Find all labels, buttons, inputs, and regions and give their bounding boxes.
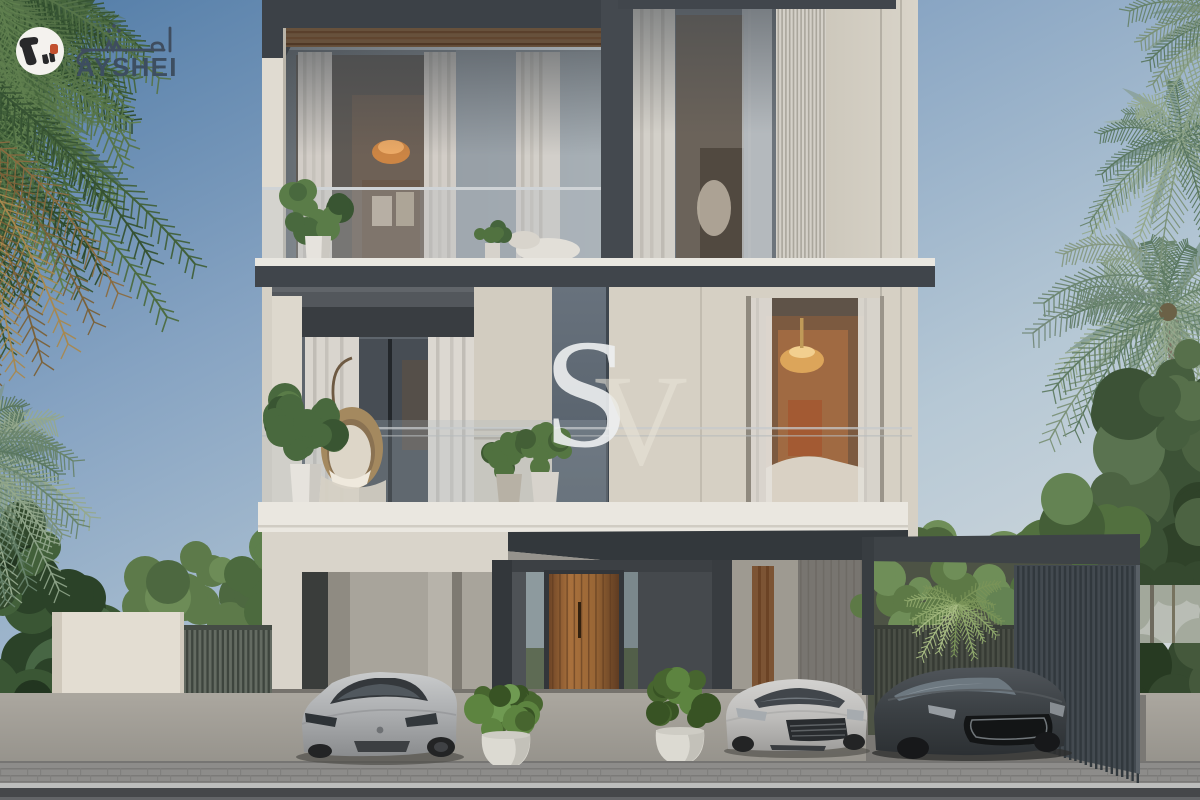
svg-text:AYSHEI: AYSHEI bbox=[76, 52, 178, 82]
svg-text:V: V bbox=[594, 349, 688, 493]
